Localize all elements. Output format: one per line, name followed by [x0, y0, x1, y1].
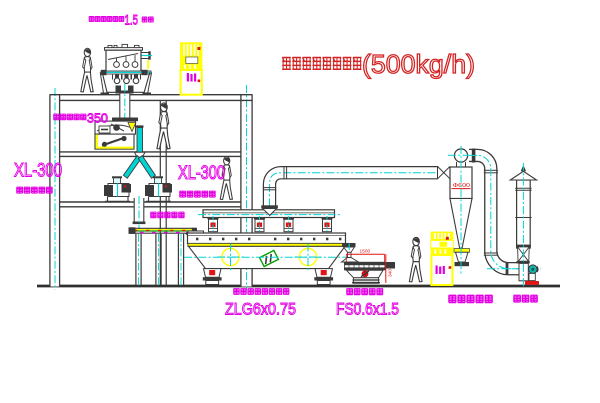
svg-text:XL-300: XL-300 — [14, 161, 62, 182]
svg-text:350: 350 — [87, 112, 108, 126]
svg-text:FS0.6x1.5: FS0.6x1.5 — [336, 301, 399, 319]
svg-text:1500: 1500 — [360, 249, 371, 255]
svg-text:1.5: 1.5 — [125, 13, 139, 28]
svg-text:ZLG6x0.75: ZLG6x0.75 — [225, 301, 296, 319]
svg-text:XL-300: XL-300 — [178, 163, 225, 184]
svg-text:340: 340 — [388, 269, 394, 277]
svg-text:(500kg/h): (500kg/h) — [362, 49, 475, 79]
